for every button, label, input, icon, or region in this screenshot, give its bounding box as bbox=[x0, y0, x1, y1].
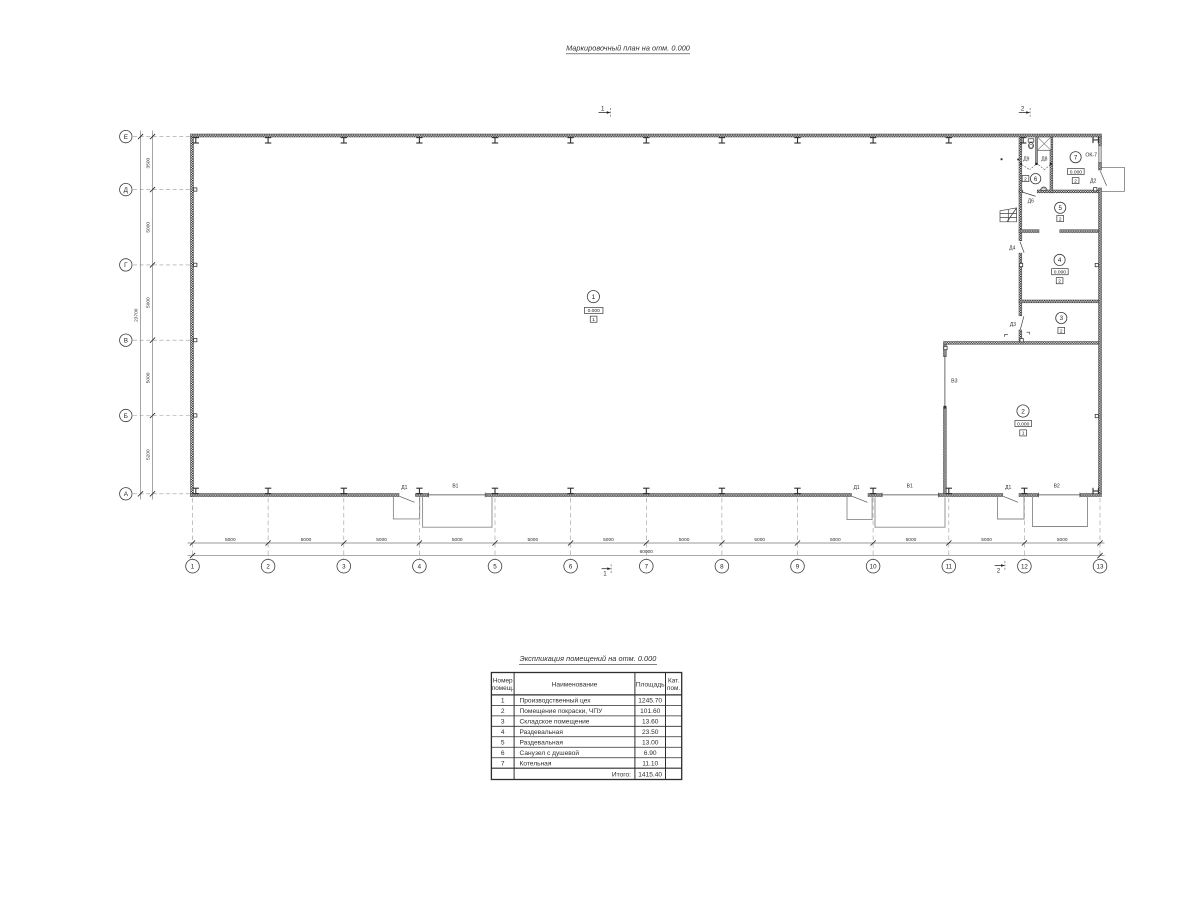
svg-text:5000: 5000 bbox=[301, 537, 312, 543]
svg-text:1: 1 bbox=[601, 105, 605, 112]
svg-text:1245.70: 1245.70 bbox=[638, 698, 662, 705]
svg-text:2: 2 bbox=[501, 708, 505, 715]
svg-text:3: 3 bbox=[501, 718, 505, 725]
svg-text:8: 8 bbox=[720, 563, 724, 570]
svg-text:ОК-7: ОК-7 bbox=[1085, 153, 1097, 159]
svg-text:Д3: Д3 bbox=[1010, 322, 1016, 328]
svg-text:4: 4 bbox=[418, 563, 422, 570]
svg-text:5000: 5000 bbox=[376, 537, 387, 543]
svg-text:Г: Г bbox=[124, 262, 128, 269]
svg-text:2: 2 bbox=[997, 568, 1001, 575]
svg-text:5: 5 bbox=[501, 739, 505, 746]
svg-text:Д9: Д9 bbox=[1023, 156, 1029, 162]
svg-text:Складское помещение: Складское помещение bbox=[520, 718, 590, 725]
svg-text:9: 9 bbox=[796, 563, 800, 570]
svg-text:6: 6 bbox=[569, 563, 573, 570]
svg-text:В1: В1 bbox=[907, 484, 913, 490]
svg-text:Д: Д bbox=[124, 187, 129, 194]
svg-text:5: 5 bbox=[1058, 205, 1062, 212]
svg-text:В: В bbox=[124, 337, 128, 344]
svg-text:5000: 5000 bbox=[225, 537, 236, 543]
svg-text:5200: 5200 bbox=[145, 449, 151, 460]
svg-text:11: 11 bbox=[946, 563, 953, 570]
svg-text:Е: Е bbox=[124, 134, 128, 141]
svg-text:4: 4 bbox=[501, 729, 505, 736]
svg-text:Площадь: Площадь bbox=[636, 682, 665, 689]
svg-text:5000: 5000 bbox=[145, 222, 151, 233]
svg-text:5000: 5000 bbox=[145, 297, 151, 308]
svg-text:Раздевальная: Раздевальная bbox=[520, 729, 564, 736]
svg-text:7: 7 bbox=[501, 760, 505, 767]
svg-text:0.000: 0.000 bbox=[1054, 269, 1067, 275]
svg-text:2: 2 bbox=[1021, 408, 1025, 415]
svg-text:Д8: Д8 bbox=[1041, 156, 1047, 162]
svg-text:1: 1 bbox=[592, 294, 596, 301]
svg-text:Д2: Д2 bbox=[1090, 178, 1097, 184]
svg-text:13.00: 13.00 bbox=[642, 739, 659, 746]
svg-text:13.60: 13.60 bbox=[642, 718, 659, 725]
svg-text:1: 1 bbox=[191, 563, 195, 570]
svg-text:5000: 5000 bbox=[981, 537, 992, 543]
svg-text:0.000: 0.000 bbox=[1017, 421, 1030, 427]
svg-text:Д6: Д6 bbox=[1028, 199, 1034, 205]
svg-text:Д1: Д1 bbox=[854, 485, 860, 491]
svg-text:2: 2 bbox=[1074, 178, 1077, 184]
svg-text:Экспликация помещений на отм.: Экспликация помещений на отм. 0.000 bbox=[520, 654, 657, 663]
svg-text:5000: 5000 bbox=[452, 537, 463, 543]
svg-text:3: 3 bbox=[342, 563, 346, 570]
svg-text:3500: 3500 bbox=[145, 157, 151, 168]
svg-text:5000: 5000 bbox=[679, 537, 690, 543]
svg-text:1: 1 bbox=[592, 317, 595, 323]
svg-text:4: 4 bbox=[1058, 257, 1062, 264]
svg-text:6: 6 bbox=[501, 750, 505, 757]
svg-text:Раздевальная: Раздевальная bbox=[520, 739, 564, 746]
svg-text:7: 7 bbox=[645, 563, 649, 570]
svg-text:Б: Б bbox=[124, 413, 128, 420]
svg-text:11.10: 11.10 bbox=[642, 760, 658, 767]
svg-text:В2: В2 bbox=[1054, 484, 1060, 490]
svg-text:5000: 5000 bbox=[906, 537, 917, 543]
svg-text:1: 1 bbox=[501, 698, 505, 705]
svg-text:5000: 5000 bbox=[830, 537, 841, 543]
svg-text:101.60: 101.60 bbox=[640, 708, 661, 715]
svg-text:1415.40: 1415.40 bbox=[638, 771, 662, 778]
svg-text:5: 5 bbox=[493, 563, 497, 570]
svg-text:В1: В1 bbox=[452, 484, 458, 490]
svg-text:Кат.: Кат. bbox=[668, 677, 679, 684]
svg-text:0.000: 0.000 bbox=[588, 308, 601, 314]
svg-text:60000: 60000 bbox=[640, 549, 654, 555]
svg-text:2: 2 bbox=[266, 563, 270, 570]
svg-text:10: 10 bbox=[870, 563, 877, 570]
svg-text:Д4: Д4 bbox=[1009, 246, 1015, 252]
svg-text:5000: 5000 bbox=[754, 537, 765, 543]
svg-text:5000: 5000 bbox=[527, 537, 538, 543]
svg-text:Помещение покраски, ЧПУ: Помещение покраски, ЧПУ bbox=[520, 708, 604, 715]
svg-text:13: 13 bbox=[1097, 563, 1104, 570]
svg-text:6.90: 6.90 bbox=[644, 750, 657, 757]
svg-text:1: 1 bbox=[1022, 431, 1025, 437]
svg-text:1: 1 bbox=[603, 571, 607, 578]
svg-text:помещ.: помещ. bbox=[492, 685, 514, 692]
svg-text:2: 2 bbox=[1058, 278, 1061, 284]
svg-text:Д1: Д1 bbox=[1005, 485, 1011, 491]
svg-text:Санузел с душевой: Санузел с душевой bbox=[520, 749, 580, 757]
svg-text:2: 2 bbox=[1024, 176, 1027, 182]
svg-text:2: 2 bbox=[1060, 328, 1063, 334]
svg-text:23.50: 23.50 bbox=[642, 729, 659, 736]
svg-text:5000: 5000 bbox=[603, 537, 614, 543]
svg-text:Д1: Д1 bbox=[401, 485, 407, 491]
svg-text:5000: 5000 bbox=[1057, 537, 1068, 543]
svg-text:3: 3 bbox=[1060, 315, 1064, 322]
svg-text:0.000: 0.000 bbox=[1070, 169, 1083, 175]
svg-text:Производственный цех: Производственный цех bbox=[520, 697, 592, 705]
svg-text:2: 2 bbox=[1021, 105, 1025, 112]
svg-text:Итого:: Итого: bbox=[612, 771, 631, 778]
svg-text:5000: 5000 bbox=[145, 372, 151, 383]
svg-text:пом.: пом. bbox=[667, 685, 680, 692]
svg-text:23700: 23700 bbox=[133, 308, 139, 322]
svg-text:2: 2 bbox=[1059, 216, 1062, 222]
svg-text:В3: В3 bbox=[951, 379, 957, 385]
svg-text:Маркировочный план на отм. 0.0: Маркировочный план на отм. 0.000 bbox=[566, 44, 690, 53]
svg-text:12: 12 bbox=[1021, 563, 1028, 570]
svg-text:Котельная: Котельная bbox=[520, 760, 552, 767]
svg-text:Наименование: Наименование bbox=[552, 682, 598, 689]
svg-text:7: 7 bbox=[1074, 154, 1078, 161]
svg-text:Номер: Номер bbox=[493, 677, 513, 684]
